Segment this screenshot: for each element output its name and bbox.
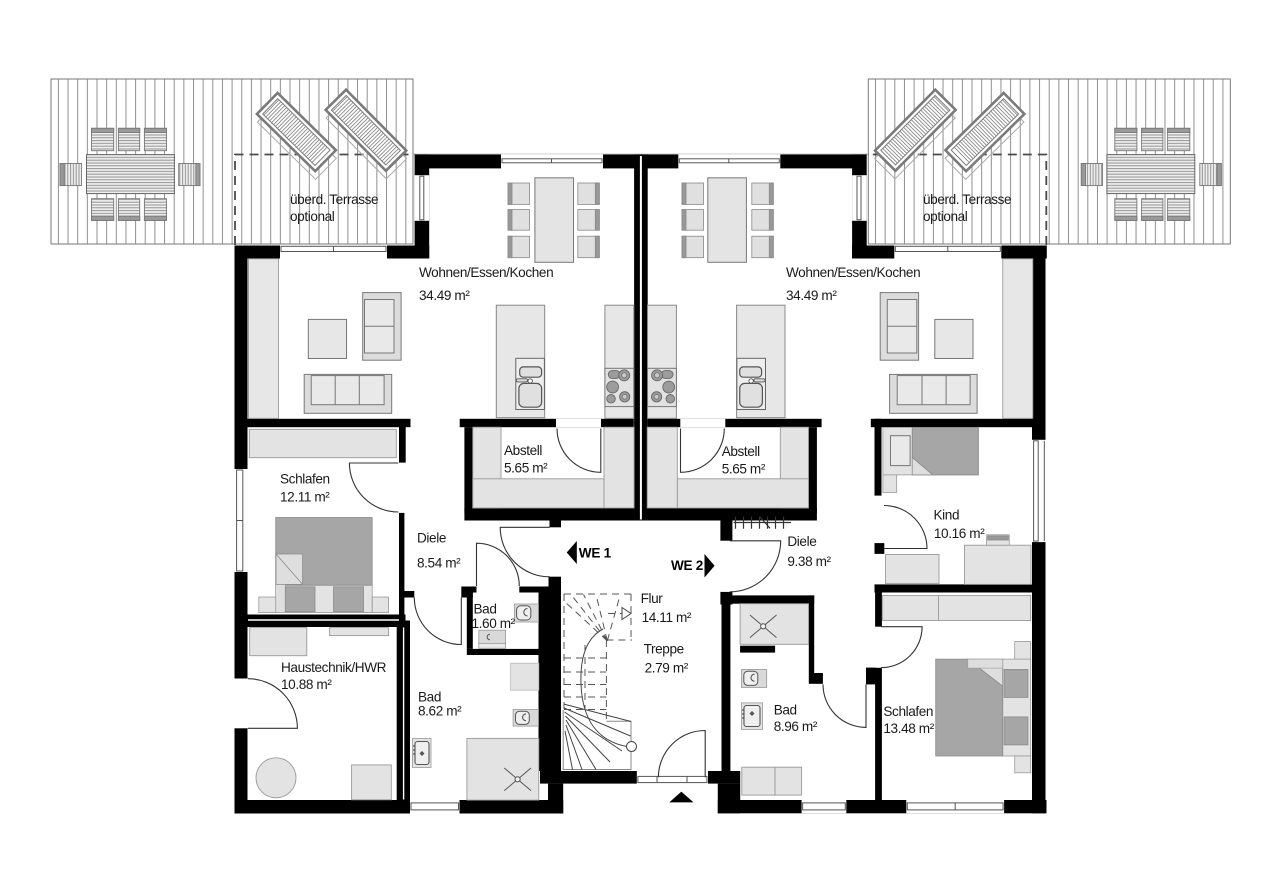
svg-text:Diele: Diele (417, 531, 446, 546)
svg-text:34.49 m²: 34.49 m² (786, 288, 837, 303)
svg-text:1.60 m²: 1.60 m² (472, 616, 516, 631)
svg-text:Schlafen: Schlafen (280, 472, 330, 487)
svg-text:Kind: Kind (934, 508, 960, 523)
svg-text:5.65 m²: 5.65 m² (504, 461, 548, 476)
svg-text:Diele: Diele (787, 534, 816, 549)
svg-text:WE 1: WE 1 (579, 546, 612, 561)
svg-text:Wohnen/Essen/Kochen: Wohnen/Essen/Kochen (786, 265, 920, 280)
svg-text:8.54 m²: 8.54 m² (417, 556, 461, 571)
svg-text:Flur: Flur (641, 591, 664, 606)
svg-text:Bad: Bad (418, 690, 441, 705)
svg-text:8.62 m²: 8.62 m² (418, 704, 462, 719)
svg-text:Abstell: Abstell (722, 444, 760, 459)
svg-text:optional: optional (923, 209, 968, 224)
svg-text:10.16 m²: 10.16 m² (934, 526, 985, 541)
svg-text:Treppe: Treppe (644, 642, 684, 657)
svg-text:optional: optional (290, 209, 335, 224)
svg-text:5.65 m²: 5.65 m² (722, 462, 766, 477)
svg-text:Abstell: Abstell (504, 443, 542, 458)
svg-text:Wohnen/Essen/Kochen: Wohnen/Essen/Kochen (419, 265, 553, 280)
svg-text:überd. Terrasse: überd. Terrasse (923, 192, 1011, 207)
svg-text:2.79 m²: 2.79 m² (645, 661, 689, 676)
svg-text:Schlafen: Schlafen (883, 704, 933, 719)
svg-text:8.96 m²: 8.96 m² (774, 719, 818, 734)
svg-text:12.11 m²: 12.11 m² (280, 490, 330, 505)
svg-text:WE 2: WE 2 (671, 558, 704, 573)
svg-text:14.11 m²: 14.11 m² (642, 610, 692, 625)
svg-text:Haustechnik/HWR: Haustechnik/HWR (281, 660, 387, 675)
svg-text:Bad: Bad (774, 703, 797, 718)
svg-text:34.49 m²: 34.49 m² (419, 288, 470, 303)
svg-text:9.38 m²: 9.38 m² (787, 554, 831, 569)
svg-text:überd. Terrasse: überd. Terrasse (290, 192, 378, 207)
svg-text:13.48 m²: 13.48 m² (883, 721, 934, 736)
svg-text:Bad: Bad (474, 602, 497, 617)
svg-text:10.88 m²: 10.88 m² (281, 677, 332, 692)
